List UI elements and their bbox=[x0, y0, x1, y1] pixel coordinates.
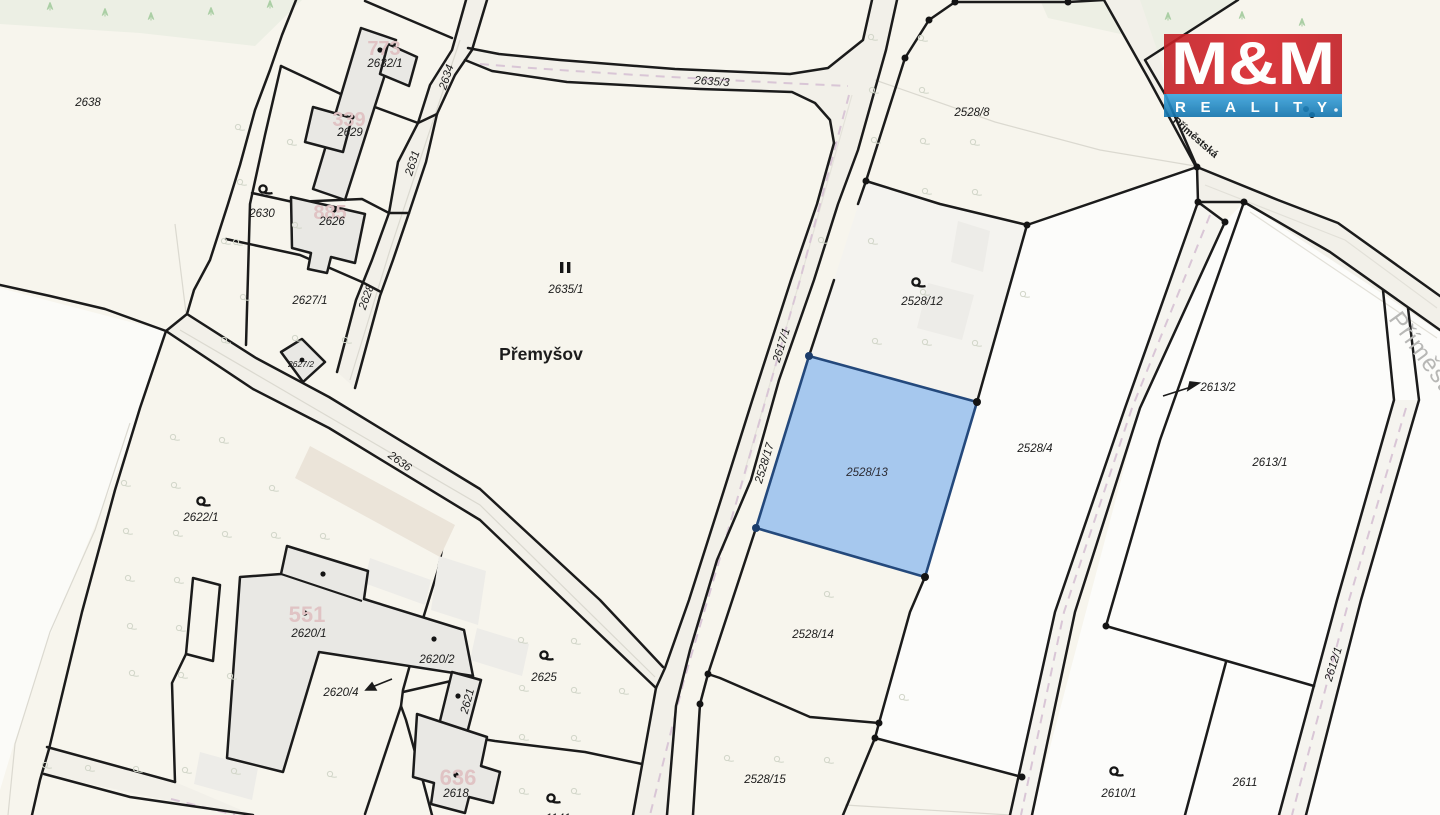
svg-text:M&M: M&M bbox=[1171, 30, 1335, 97]
svg-text:773: 773 bbox=[367, 38, 400, 60]
svg-text:2638: 2638 bbox=[74, 97, 101, 109]
svg-text:2627/2: 2627/2 bbox=[287, 359, 314, 369]
svg-text:2610/1: 2610/1 bbox=[1100, 788, 1136, 800]
svg-text:2635/3: 2635/3 bbox=[693, 75, 731, 90]
svg-text:2630: 2630 bbox=[248, 208, 275, 220]
svg-text:2632/1: 2632/1 bbox=[366, 58, 402, 70]
svg-text:2528/14: 2528/14 bbox=[791, 629, 834, 641]
svg-text:2618: 2618 bbox=[442, 788, 469, 800]
svg-text:2528/13: 2528/13 bbox=[845, 467, 888, 479]
svg-text:2635/1: 2635/1 bbox=[547, 284, 583, 296]
svg-text:636: 636 bbox=[440, 765, 477, 790]
svg-text:2528/8: 2528/8 bbox=[953, 107, 990, 119]
svg-text:2528/12: 2528/12 bbox=[900, 296, 943, 308]
svg-text:2629: 2629 bbox=[336, 127, 363, 139]
svg-text:2625: 2625 bbox=[530, 672, 557, 684]
svg-text:2620/4: 2620/4 bbox=[322, 687, 358, 699]
svg-text:2613/1: 2613/1 bbox=[1251, 457, 1287, 469]
svg-text:551: 551 bbox=[289, 602, 326, 627]
svg-text:2528/15: 2528/15 bbox=[743, 774, 786, 786]
svg-text:2620/1: 2620/1 bbox=[290, 628, 326, 640]
svg-text:2626: 2626 bbox=[318, 216, 345, 228]
svg-text:Přemyšov: Přemyšov bbox=[499, 344, 583, 364]
svg-text:2613/2: 2613/2 bbox=[1199, 382, 1236, 394]
svg-text:2611: 2611 bbox=[1232, 777, 1258, 789]
svg-text:2622/1: 2622/1 bbox=[182, 512, 218, 524]
svg-text:2620/2: 2620/2 bbox=[418, 654, 455, 666]
svg-text:2528/4: 2528/4 bbox=[1016, 443, 1052, 455]
svg-text:2627/1: 2627/1 bbox=[291, 295, 327, 307]
